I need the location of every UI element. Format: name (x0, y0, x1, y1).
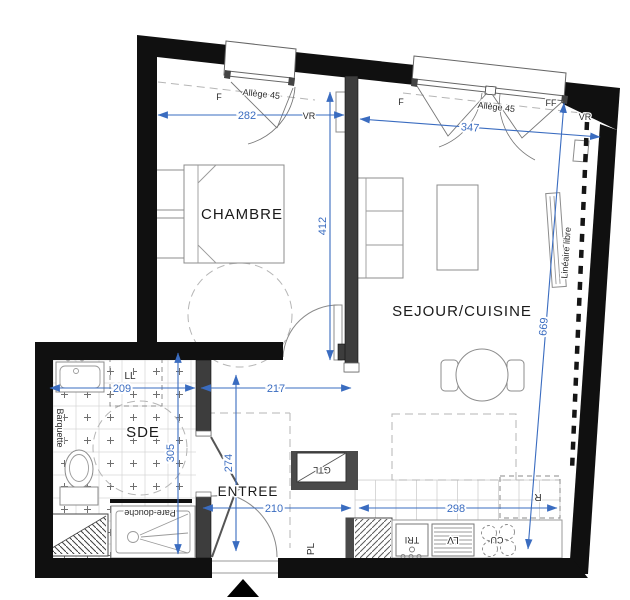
coffee-table (437, 185, 478, 270)
dim-label-kitchen-run: 298 (447, 503, 465, 515)
dim-label-chambre-depth: 412 (317, 217, 329, 235)
dining-set (441, 349, 524, 401)
room-label-chambre: CHAMBRE (201, 206, 283, 223)
round-table (456, 349, 508, 401)
tri-label: TRI (405, 535, 420, 545)
washbasin (56, 356, 104, 392)
lv-label: LV (447, 534, 459, 545)
dim-label-sde-width: 209 (113, 383, 131, 395)
pl-label: PL (306, 542, 317, 555)
pare-douche-label: Pare-douche (124, 508, 176, 518)
entree-zone-dashed (207, 413, 290, 548)
dim-label-sejour-width: 347 (460, 121, 479, 134)
entrance-arrow-icon (227, 579, 259, 597)
window-sejour-vr-label: VR (579, 112, 592, 122)
floor-plan-drawing: 282 347 412 217 209 305 274 210 298 669 … (0, 0, 630, 600)
room-label-sejour-cuisine: SEJOUR/CUISINE (392, 303, 532, 320)
dim-label-entree-width: 210 (265, 503, 283, 515)
partition-chambre-sejour (345, 76, 358, 372)
partition-sde-entree-upper (196, 360, 211, 436)
window-chambre-vr-label: VR (303, 111, 316, 121)
dim-347-line (360, 119, 600, 137)
window-sejour-allege-label: Allège 45 (477, 100, 515, 114)
pl-closet (346, 518, 392, 562)
cu-label: CU (491, 535, 504, 545)
fridge-label: R (534, 491, 541, 502)
window-sejour-f-label: F (398, 97, 404, 107)
kitchen-zone-dashed (392, 414, 516, 480)
barquette-label: Barquette (55, 408, 65, 447)
room-label-entree: ENTREE (218, 484, 279, 499)
chair (441, 360, 458, 391)
gtl-label: GTL (313, 465, 331, 475)
partition-sde-entree-lower (196, 496, 211, 558)
nightstand (156, 170, 184, 210)
window-chambre-f-label: F (216, 92, 222, 102)
floor-plan: 282 347 412 217 209 305 274 210 298 669 … (0, 0, 630, 600)
entry-threshold (212, 559, 278, 577)
dim-label-chambre-south: 217 (267, 383, 285, 395)
dim-label-sde-depth: 305 (165, 444, 177, 462)
dim-label-sejour-depth: 669 (537, 317, 551, 336)
chair (507, 360, 524, 391)
entry-door-leaf (212, 496, 234, 557)
partition-end-cap (344, 363, 359, 372)
window-sejour-ff-label: FF (546, 98, 557, 108)
sofa (354, 178, 403, 278)
room-label-sde: SDE (126, 424, 160, 441)
dim-label-entree-depth: 274 (223, 454, 235, 472)
washing-machine-label: LL (124, 371, 136, 382)
nightstand (156, 218, 184, 258)
dim-label-chambre-width: 282 (238, 110, 256, 122)
